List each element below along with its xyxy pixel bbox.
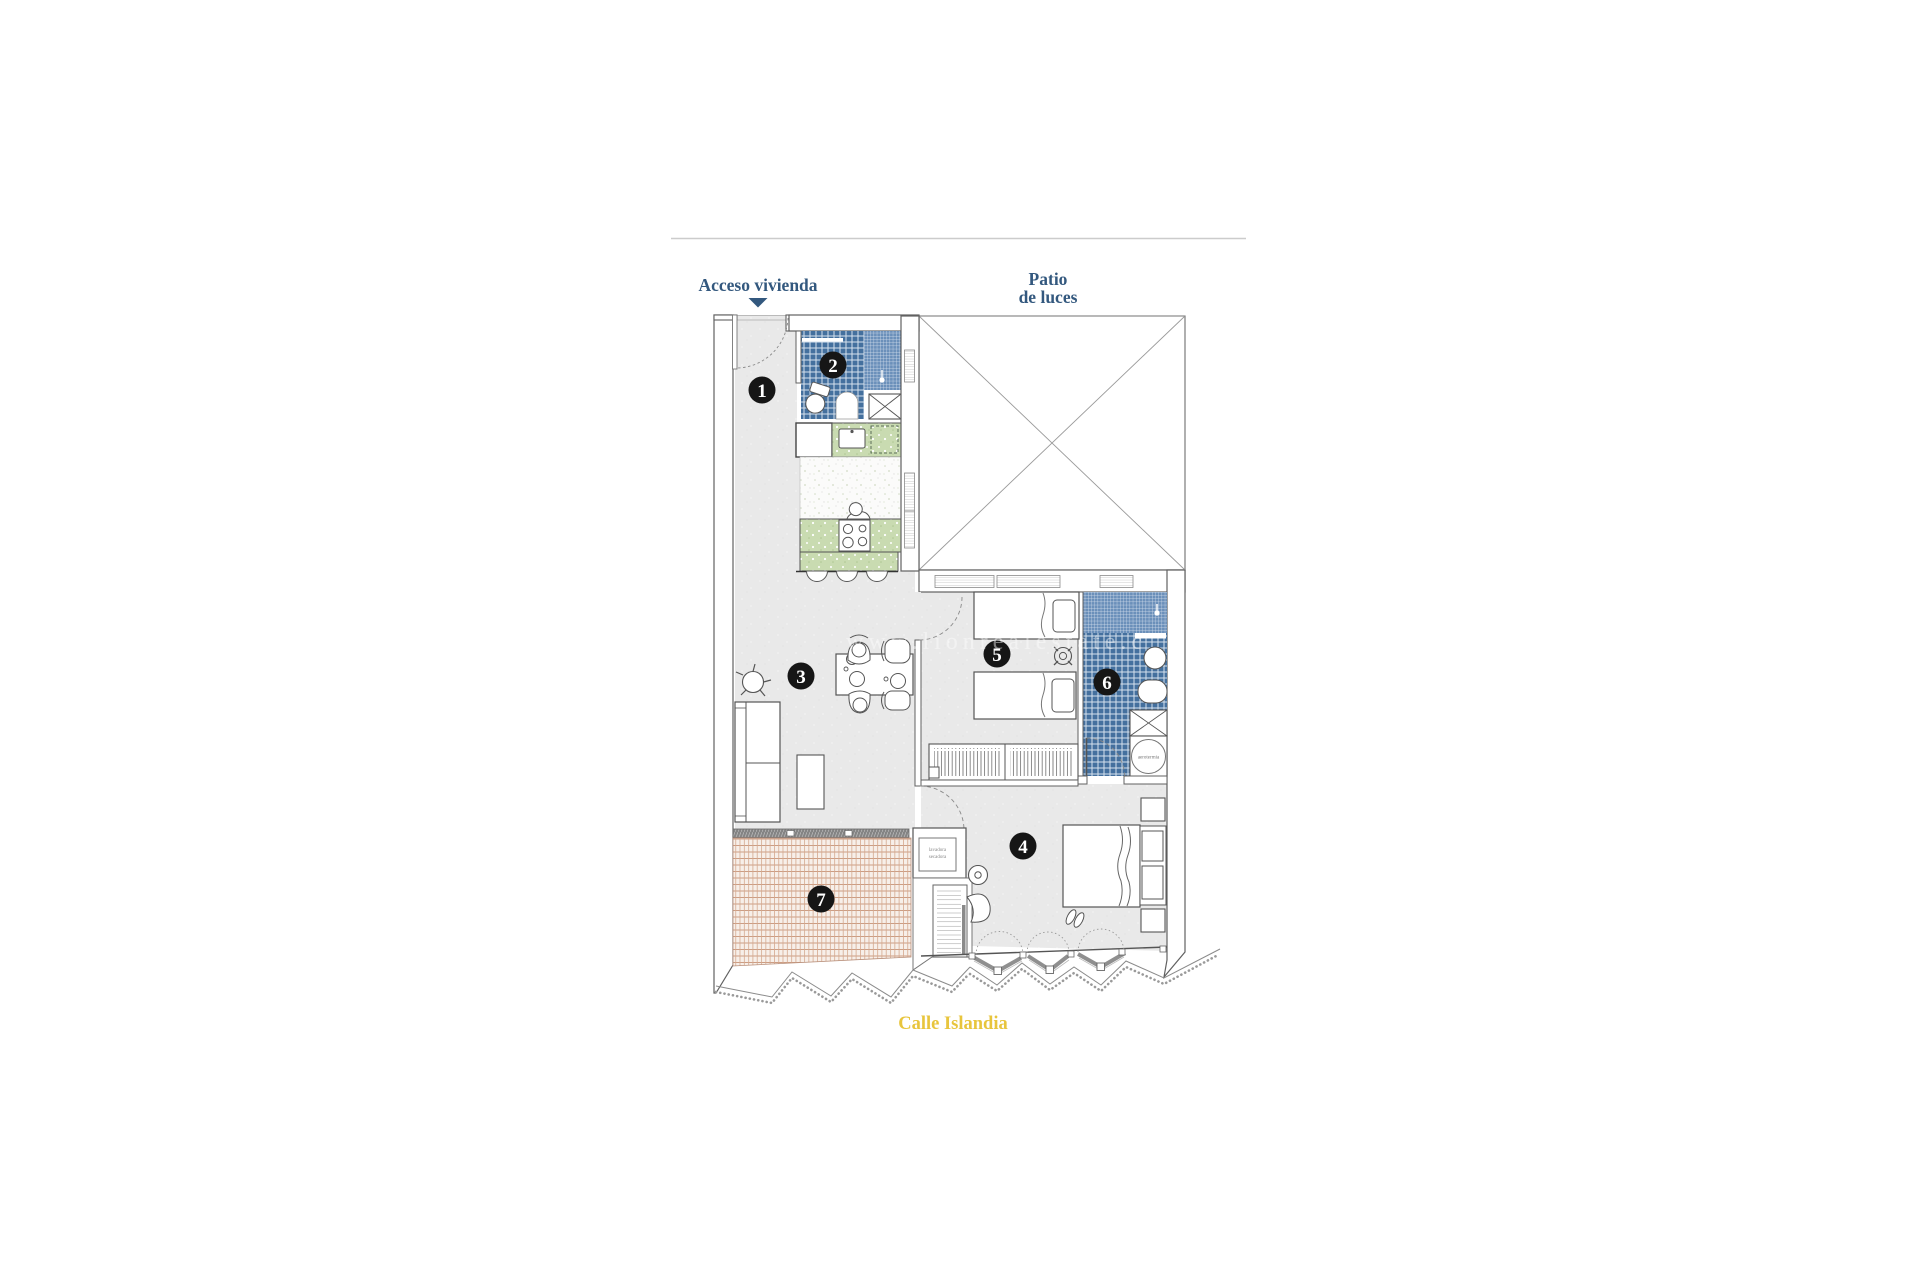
svg-text:3: 3 (796, 667, 806, 688)
svg-text:Patio: Patio (1029, 269, 1068, 289)
svg-text:6: 6 (1102, 673, 1112, 694)
svg-text:lavadora: lavadora (929, 848, 947, 853)
svg-text:1: 1 (757, 381, 767, 402)
svg-text:4: 4 (1018, 837, 1028, 858)
svg-text:de luces: de luces (1019, 287, 1078, 307)
svg-text:7: 7 (816, 890, 826, 911)
svg-text:aerotermia: aerotermia (1138, 756, 1160, 761)
svg-text:secadora: secadora (929, 855, 947, 860)
svg-text:www.lionrealestate.c: www.lionrealestate.c (846, 629, 1147, 655)
svg-text:Calle Islandia: Calle Islandia (898, 1014, 1007, 1034)
svg-text:2: 2 (828, 356, 838, 377)
svg-text:Acceso vivienda: Acceso vivienda (698, 275, 817, 295)
